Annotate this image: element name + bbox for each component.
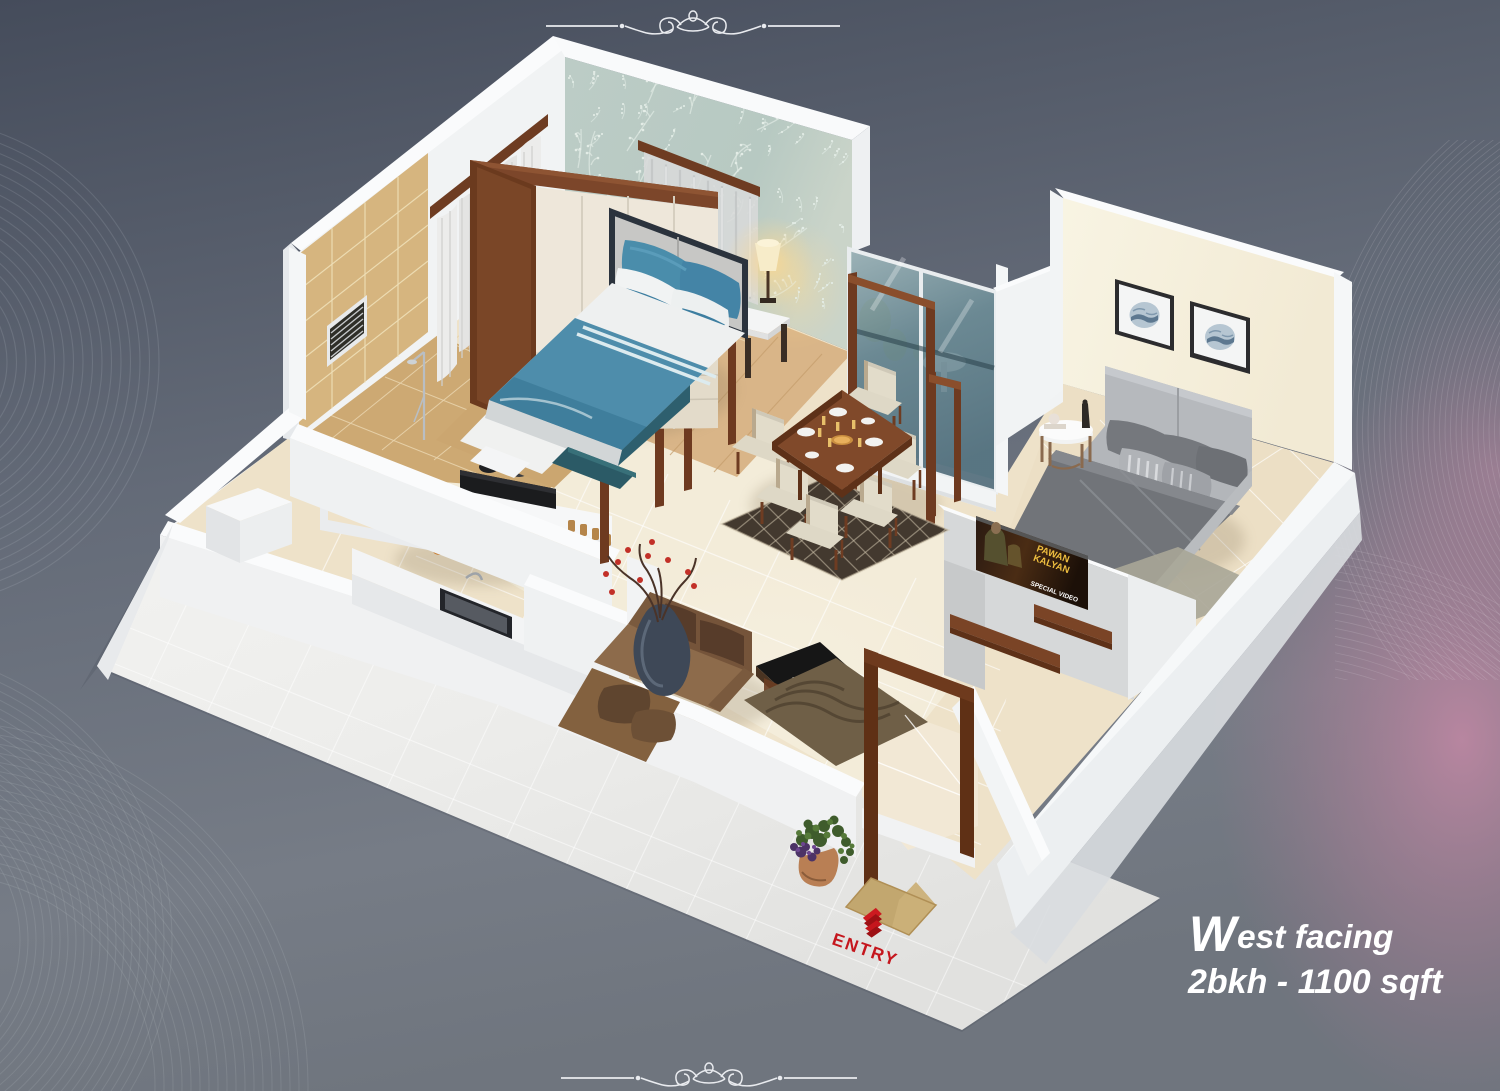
svg-text:2bkh - 1100 sqft: 2bkh - 1100 sqft [1187, 963, 1444, 1001]
svg-text:est facing: est facing [1237, 919, 1393, 956]
svg-text:W: W [1189, 906, 1240, 962]
